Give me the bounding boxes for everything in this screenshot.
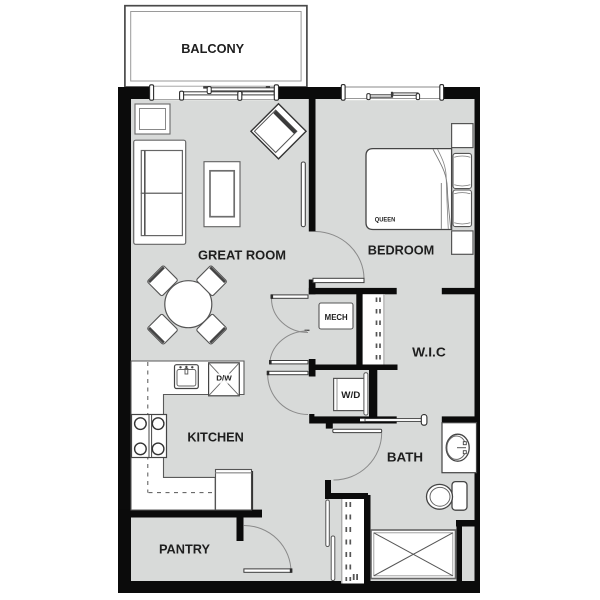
svg-text:BATH: BATH xyxy=(387,449,423,464)
svg-text:GREAT ROOM: GREAT ROOM xyxy=(198,248,286,263)
svg-text:D/W: D/W xyxy=(216,374,232,383)
svg-text:QUEEN: QUEEN xyxy=(375,216,396,223)
svg-text:BALCONY: BALCONY xyxy=(181,41,244,56)
svg-text:W.I.C: W.I.C xyxy=(412,345,446,360)
svg-text:MECH: MECH xyxy=(325,313,348,322)
svg-text:BEDROOM: BEDROOM xyxy=(368,242,435,257)
svg-text:W/D: W/D xyxy=(341,390,360,400)
svg-text:KITCHEN: KITCHEN xyxy=(187,430,244,445)
svg-text:PANTRY: PANTRY xyxy=(159,542,210,557)
